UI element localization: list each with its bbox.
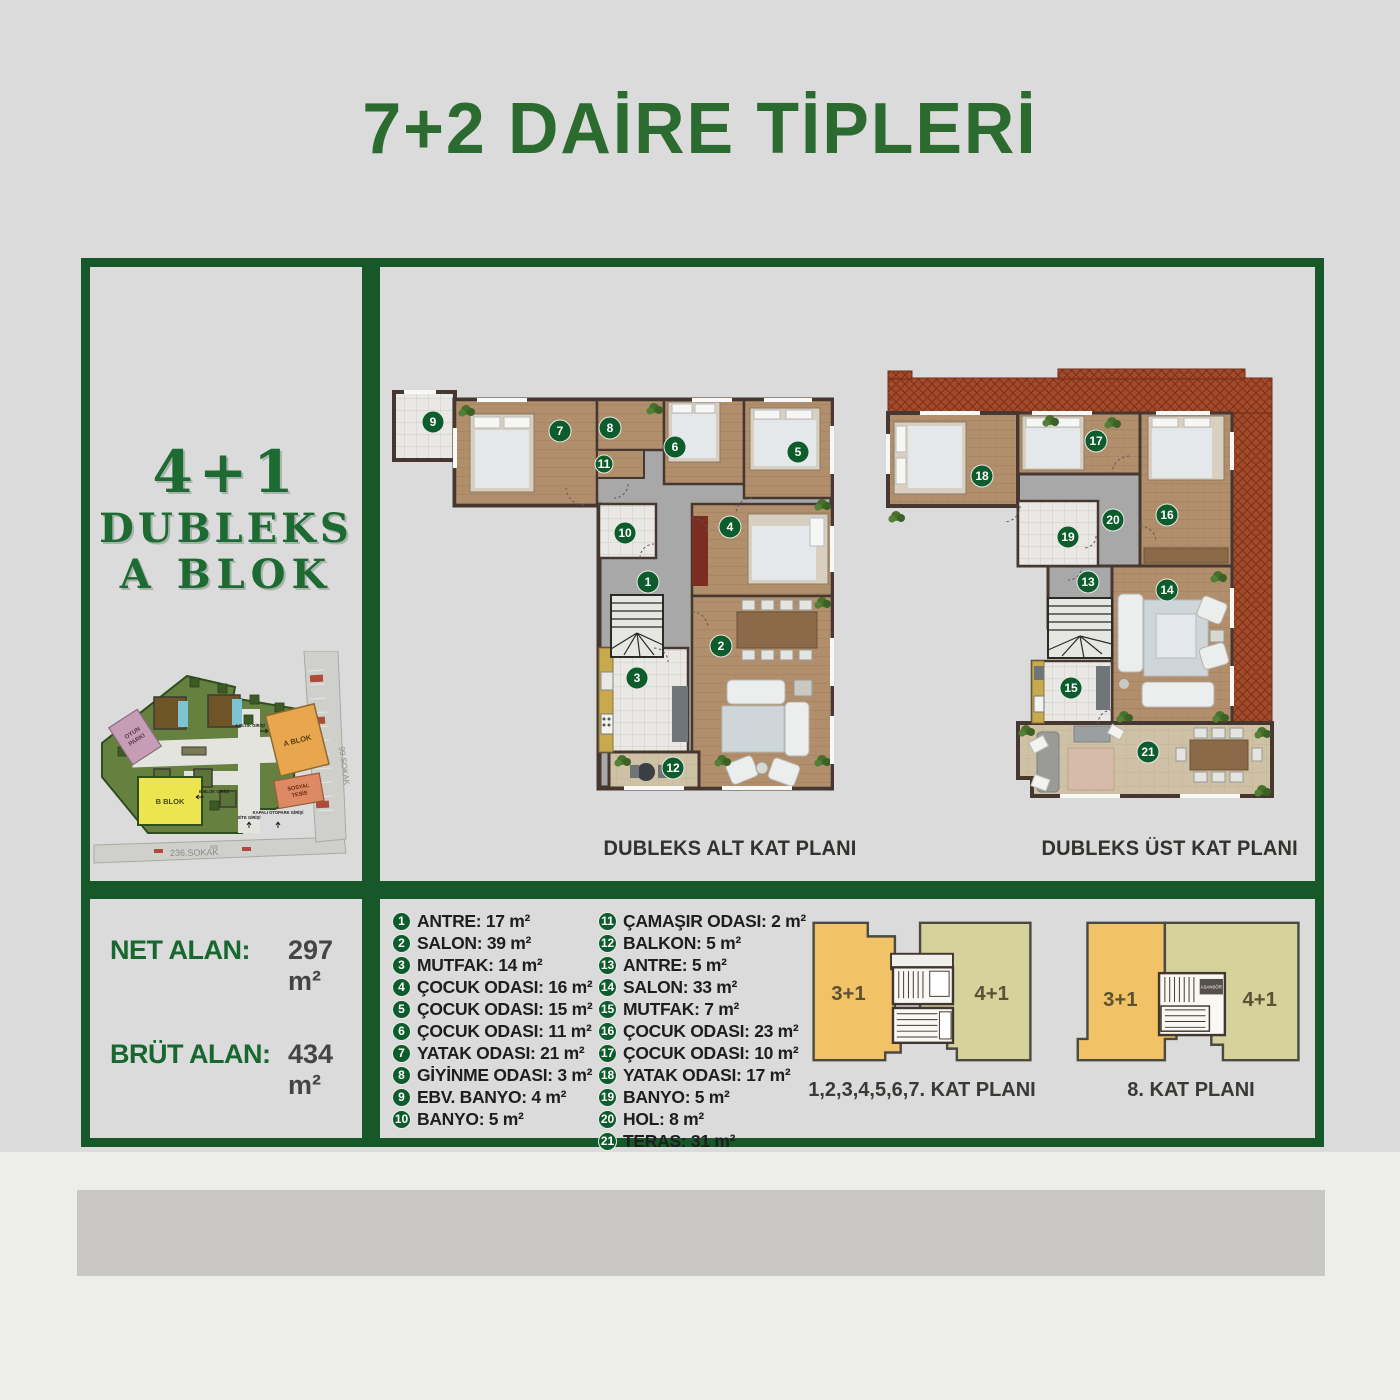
legend-label: BALKON: 5 m² xyxy=(623,933,741,954)
block-type-label: 4+1 xyxy=(90,439,362,506)
bottom-gray-band xyxy=(77,1190,1325,1276)
poster: 7+2 DAİRE TİPLERİ 4+1 DUBLEKS A BLOK 236… xyxy=(0,0,1400,1400)
svg-text:13: 13 xyxy=(1081,575,1095,589)
legend-number-badge: 19 xyxy=(598,1088,617,1107)
svg-text:3: 3 xyxy=(634,671,641,685)
legend-item: 5ÇOCUK ODASI: 15 m² xyxy=(392,998,592,1020)
legend-item: 8GİYİNME ODASI: 3 m² xyxy=(392,1064,592,1086)
kat-plan-8: ASANSÖR 3+1 4+1 xyxy=(1072,917,1310,1067)
ust-kat-caption: DUBLEKS ÜST KAT PLANI xyxy=(1042,837,1251,861)
unit-label-3plus1: 3+1 xyxy=(1103,989,1137,1011)
bed xyxy=(748,514,828,584)
bed xyxy=(750,408,820,470)
legend-column-1: 1ANTRE: 17 m² 2SALON: 39 m² 3MUTFAK: 14 … xyxy=(392,910,592,1130)
legend-number-badge: 21 xyxy=(598,1132,617,1151)
svg-text:14: 14 xyxy=(1160,583,1174,597)
block-title: 4+1 DUBLEKS A BLOK xyxy=(90,439,362,598)
legend-number-badge: 5 xyxy=(392,1000,411,1019)
legend-number-badge: 16 xyxy=(598,1022,617,1041)
legend-label: BANYO: 5 m² xyxy=(417,1109,524,1130)
legend-number-badge: 14 xyxy=(598,978,617,997)
svg-text:10: 10 xyxy=(618,526,632,540)
legend-number-badge: 10 xyxy=(392,1110,411,1129)
svg-text:A BLOK GİRİŞİ: A BLOK GİRİŞİ xyxy=(235,723,265,728)
sofa-set xyxy=(722,680,812,787)
svg-text:9: 9 xyxy=(430,415,437,429)
legend-item: 4ÇOCUK ODASI: 16 m² xyxy=(392,976,592,998)
svg-text:1: 1 xyxy=(645,575,652,589)
legend-item: 10BANYO: 5 m² xyxy=(392,1108,592,1130)
bed xyxy=(894,422,966,494)
legend-label: ÇOCUK ODASI: 11 m² xyxy=(417,1021,592,1042)
legend-label: HOL: 8 m² xyxy=(623,1109,704,1130)
legend-number-badge: 13 xyxy=(598,956,617,975)
legend-label: BANYO: 5 m² xyxy=(623,1087,730,1108)
street-label-bottom: 236.SOKAK xyxy=(170,847,219,858)
b-blok: B BLOK xyxy=(138,777,202,825)
legend-number-badge: 11 xyxy=(598,912,617,931)
legend-label: GİYİNME ODASI: 3 m² xyxy=(417,1065,592,1086)
legend-label: YATAK ODASI: 21 m² xyxy=(417,1043,584,1064)
kat-plan-8-caption: 8. KAT PLANI xyxy=(1072,1079,1310,1102)
legend-item: 21TERAS: 31 m² xyxy=(598,1130,806,1152)
legend-label: YATAK ODASI: 17 m² xyxy=(623,1065,790,1086)
stairs-ust xyxy=(1048,598,1112,658)
legend-label: ÇOCUK ODASI: 23 m² xyxy=(623,1021,798,1042)
legend-number-badge: 2 xyxy=(392,934,411,953)
legend-number-badge: 6 xyxy=(392,1022,411,1041)
legend-number-badge: 18 xyxy=(598,1066,617,1085)
legend-cell: 1ANTRE: 17 m² 2SALON: 39 m² 3MUTFAK: 14 … xyxy=(371,890,1324,1147)
legend-column-2: 11ÇAMAŞIR ODASI: 2 m² 12BALKON: 5 m² 13A… xyxy=(598,910,806,1152)
svg-text:20: 20 xyxy=(1106,513,1120,527)
legend-item: 15MUTFAK: 7 m² xyxy=(598,998,806,1020)
legend-label: EBV. BANYO: 4 m² xyxy=(417,1087,566,1108)
svg-text:5: 5 xyxy=(795,445,802,459)
legend-item: 19BANYO: 5 m² xyxy=(598,1086,806,1108)
svg-text:17: 17 xyxy=(1089,434,1103,448)
svg-text:B BLOK GİRİŞİ: B BLOK GİRİŞİ xyxy=(199,789,229,794)
area-cell: NET ALAN: 297 m² BRÜT ALAN: 434 m² xyxy=(81,890,371,1147)
legend-item: 13ANTRE: 5 m² xyxy=(598,954,806,976)
block-name-label: A BLOK xyxy=(90,552,362,598)
legend-label: MUTFAK: 14 m² xyxy=(417,955,542,976)
unit-label-4plus1: 4+1 xyxy=(974,983,1008,1005)
legend-item: 20HOL: 8 m² xyxy=(598,1108,806,1130)
legend-number-badge: 3 xyxy=(392,956,411,975)
svg-text:2: 2 xyxy=(718,639,725,653)
legend-item: 9EBV. BANYO: 4 m² xyxy=(392,1086,592,1108)
legend-item: 14SALON: 33 m² xyxy=(598,976,806,998)
legend-label: ÇOCUK ODASI: 10 m² xyxy=(623,1043,798,1064)
legend-number-badge: 20 xyxy=(598,1110,617,1129)
svg-text:18: 18 xyxy=(975,469,989,483)
legend-number-badge: 12 xyxy=(598,934,617,953)
legend-label: MUTFAK: 7 m² xyxy=(623,999,739,1020)
svg-text:7: 7 xyxy=(557,424,564,438)
legend-label: SALON: 39 m² xyxy=(417,933,531,954)
legend-number-badge: 8 xyxy=(392,1066,411,1085)
stair-core: ASANSÖR xyxy=(1159,973,1225,1035)
dubleks-alt-kat-plan: 1 2 3 4 5 6 7 8 9 10 11 12 xyxy=(392,386,834,810)
net-alan-value: 297 m² xyxy=(288,935,342,997)
legend-item: 3MUTFAK: 14 m² xyxy=(392,954,592,976)
kat-plan-1-7-caption: 1,2,3,4,5,6,7. KAT PLANI xyxy=(802,1079,1042,1102)
block-dubleks-label: DUBLEKS xyxy=(90,506,362,552)
legend-item: 12BALKON: 5 m² xyxy=(598,932,806,954)
legend-item: 11ÇAMAŞIR ODASI: 2 m² xyxy=(598,910,806,932)
kat-plan-1-7: 3+1 4+1 xyxy=(802,917,1042,1067)
bed xyxy=(1148,416,1224,480)
alt-kat-caption: DUBLEKS ALT KAT PLANI xyxy=(604,837,813,861)
sidebar-cell: 4+1 DUBLEKS A BLOK 236.SOKAK xyxy=(81,258,371,890)
page-title: 7+2 DAİRE TİPLERİ xyxy=(21,88,1379,170)
legend-number-badge: 4 xyxy=(392,978,411,997)
svg-text:B BLOK: B BLOK xyxy=(156,797,185,806)
svg-text:19: 19 xyxy=(1061,530,1075,544)
legend-label: TERAS: 31 m² xyxy=(623,1131,735,1152)
svg-text:4: 4 xyxy=(727,520,734,534)
legend-label: ANTRE: 5 m² xyxy=(623,955,727,976)
brut-alan-label: BRÜT ALAN: xyxy=(110,1039,288,1070)
legend-number-badge: 9 xyxy=(392,1088,411,1107)
main-frame: 4+1 DUBLEKS A BLOK 236.SOKAK xyxy=(81,258,1324,1147)
legend-item: 1ANTRE: 17 m² xyxy=(392,910,592,932)
unit-label-3plus1: 3+1 xyxy=(831,983,865,1005)
asansor-label: ASANSÖR xyxy=(1201,985,1222,990)
legend-item: 2SALON: 39 m² xyxy=(392,932,592,954)
svg-text:6: 6 xyxy=(672,440,679,454)
area-box: NET ALAN: 297 m² BRÜT ALAN: 434 m² xyxy=(110,935,342,1143)
wardrobe xyxy=(1144,548,1228,563)
legend-label: ANTRE: 17 m² xyxy=(417,911,530,932)
svg-text:15: 15 xyxy=(1064,681,1078,695)
legend-number-badge: 7 xyxy=(392,1044,411,1063)
legend-label: ÇOCUK ODASI: 16 m² xyxy=(417,977,592,998)
legend-item: 18YATAK ODASI: 17 m² xyxy=(598,1064,806,1086)
plans-cell: 1 2 3 4 5 6 7 8 9 10 11 12 xyxy=(371,258,1324,890)
svg-text:21: 21 xyxy=(1141,745,1155,759)
legend-item: 7YATAK ODASI: 21 m² xyxy=(392,1042,592,1064)
legend-item: 6ÇOCUK ODASI: 11 m² xyxy=(392,1020,592,1042)
site-plan: 236.SOKAK 99.SOKA xyxy=(92,651,360,877)
legend-label: ÇAMAŞIR ODASI: 2 m² xyxy=(623,911,806,932)
svg-text:12: 12 xyxy=(666,761,680,775)
net-alan-label: NET ALAN: xyxy=(110,935,288,966)
legend-label: SALON: 33 m² xyxy=(623,977,737,998)
road-bottom: 236.SOKAK xyxy=(94,837,346,863)
bed xyxy=(470,414,534,492)
svg-text:KAPALI OTOPARK GİRİŞİ: KAPALI OTOPARK GİRİŞİ xyxy=(253,810,304,815)
legend-item: 16ÇOCUK ODASI: 23 m² xyxy=(598,1020,806,1042)
svg-text:8: 8 xyxy=(607,421,614,435)
dubleks-ust-kat-plan: 13 14 15 16 17 18 19 20 21 xyxy=(860,366,1284,802)
stair-core xyxy=(891,954,953,1043)
legend-number-badge: 17 xyxy=(598,1044,617,1063)
legend-item: 17ÇOCUK ODASI: 10 m² xyxy=(598,1042,806,1064)
brut-alan-value: 434 m² xyxy=(288,1039,342,1101)
legend-label: ÇOCUK ODASI: 15 m² xyxy=(417,999,592,1020)
svg-text:16: 16 xyxy=(1160,508,1174,522)
unit-label-4plus1: 4+1 xyxy=(1242,989,1276,1011)
svg-text:11: 11 xyxy=(598,457,611,471)
legend-number-badge: 15 xyxy=(598,1000,617,1019)
svg-text:SİTE GİRİŞİ: SİTE GİRİŞİ xyxy=(237,815,260,820)
legend-number-badge: 1 xyxy=(392,912,411,931)
